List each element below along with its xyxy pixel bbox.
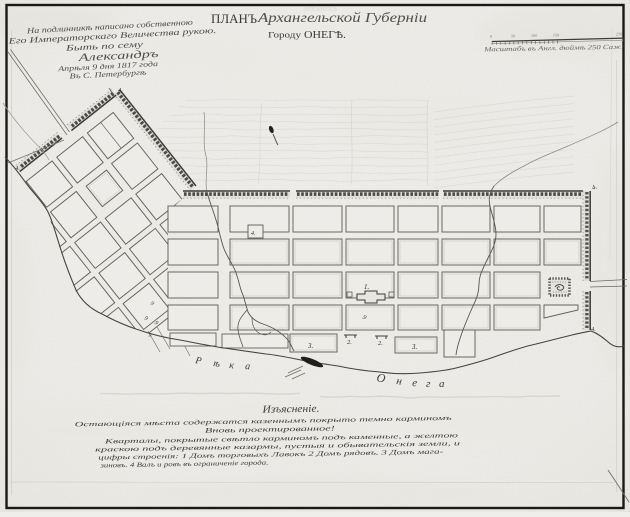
svg-text:а: а bbox=[439, 378, 445, 390]
svg-text:100: 100 bbox=[531, 33, 538, 38]
svg-text:2.: 2. bbox=[347, 339, 352, 346]
svg-text:2.: 2. bbox=[378, 340, 383, 347]
svg-text:Архангельской Губерніи: Архангельской Губерніи bbox=[257, 10, 428, 25]
svg-text:Городу: Городу bbox=[268, 31, 301, 40]
svg-text:1.: 1. bbox=[364, 283, 370, 291]
svg-text:ОНЕГѢ.: ОНЕГѢ. bbox=[304, 29, 346, 41]
svg-text:4.: 4. bbox=[251, 230, 256, 237]
svg-text:3.: 3. bbox=[411, 343, 418, 351]
svg-text:150: 150 bbox=[553, 32, 560, 37]
svg-text:Изъясненіе.: Изъясненіе. bbox=[261, 404, 319, 416]
svg-text:4.: 4. bbox=[118, 87, 123, 94]
svg-text:250: 250 bbox=[616, 31, 623, 36]
svg-text:е: е bbox=[412, 377, 418, 389]
svg-text:а: а bbox=[245, 361, 251, 372]
svg-text:ПЛАНЪ: ПЛАНЪ bbox=[211, 12, 257, 26]
svg-text:3.: 3. bbox=[307, 342, 314, 350]
